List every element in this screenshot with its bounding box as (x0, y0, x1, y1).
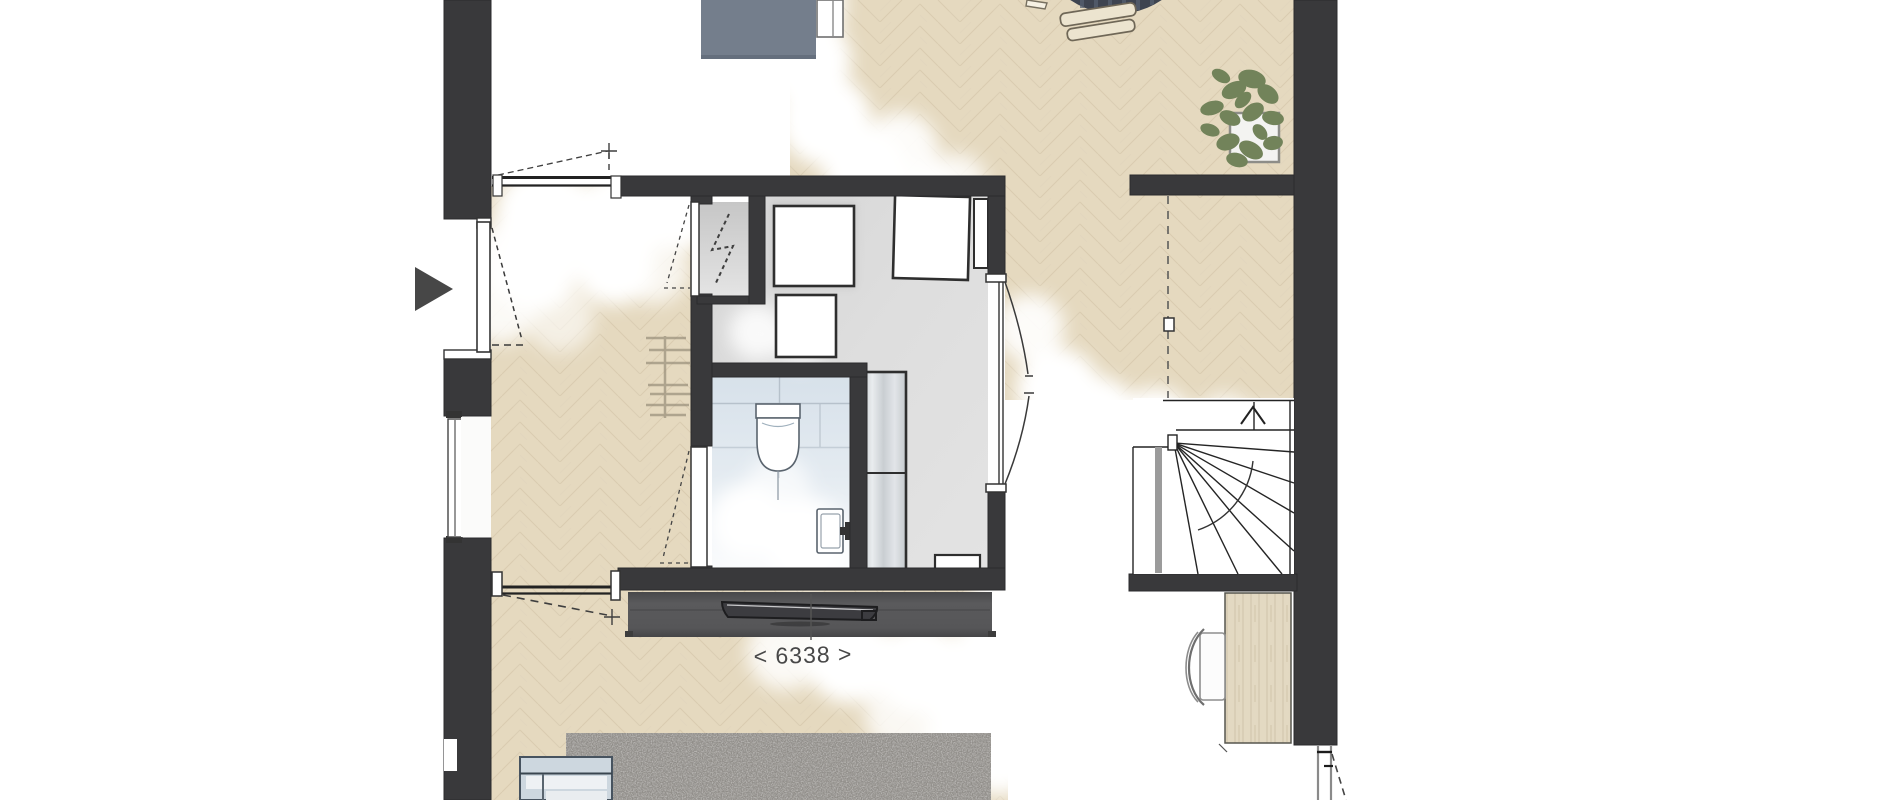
svg-text:< 6338 >: < 6338 > (753, 641, 852, 670)
